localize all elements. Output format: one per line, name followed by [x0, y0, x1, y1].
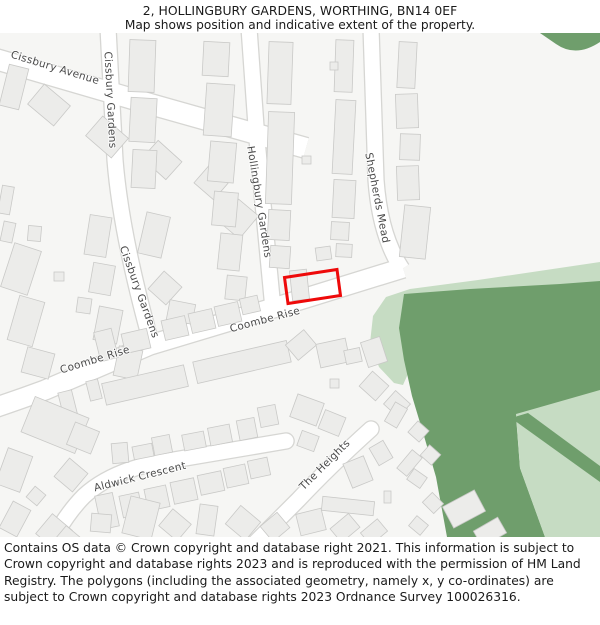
- building-footprint: [384, 491, 391, 503]
- building-footprint: [400, 134, 421, 161]
- building-footprint: [27, 225, 41, 241]
- building-footprint: [257, 404, 278, 427]
- building-footprint: [330, 379, 339, 388]
- building-footprint: [397, 42, 417, 89]
- building-footprint: [247, 457, 270, 479]
- building-footprint: [332, 100, 356, 175]
- building-footprint: [212, 191, 239, 227]
- building-footprint: [170, 478, 198, 505]
- building-footprint: [207, 424, 232, 446]
- building-footprint: [332, 179, 356, 218]
- building-footprint: [129, 97, 157, 142]
- page-subtitle: Map shows position and indicative extent…: [0, 18, 600, 33]
- building-footprint: [265, 112, 294, 205]
- building-footprint: [202, 41, 230, 76]
- map-header: 2, HOLLINGBURY GARDENS, WORTHING, BN14 0…: [0, 0, 600, 33]
- building-footprint: [331, 222, 350, 241]
- building-footprint: [196, 504, 218, 536]
- building-footprint: [151, 434, 172, 455]
- building-footprint: [344, 347, 363, 364]
- building-footprint: [399, 205, 430, 259]
- map-viewport: Cissbury AvenueCissbury GardensCissbury …: [0, 33, 600, 537]
- building-footprint: [89, 262, 116, 295]
- building-footprint: [267, 42, 293, 105]
- building-footprint: [330, 62, 338, 70]
- building-footprint: [225, 275, 247, 301]
- building-footprint: [336, 244, 353, 258]
- building-footprint: [315, 246, 332, 261]
- building-footprint: [131, 149, 157, 188]
- building-footprint: [396, 166, 419, 201]
- building-footprint: [395, 94, 418, 129]
- map-canvas: Cissbury AvenueCissbury GardensCissbury …: [0, 33, 600, 537]
- building-footprint: [76, 297, 92, 314]
- property-map-page: 2, HOLLINGBURY GARDENS, WORTHING, BN14 0…: [0, 0, 600, 625]
- building-footprint: [90, 513, 111, 533]
- building-footprint: [302, 156, 311, 164]
- building-footprint: [236, 417, 257, 440]
- building-footprint: [207, 141, 236, 183]
- building-footprint: [239, 295, 260, 315]
- copyright-attribution: Contains OS data © Crown copyright and d…: [0, 537, 600, 625]
- building-footprint: [111, 442, 129, 463]
- building-footprint: [128, 40, 156, 93]
- building-footprint: [223, 464, 249, 488]
- building-footprint: [203, 83, 235, 137]
- building-footprint: [217, 233, 243, 271]
- building-footprint: [54, 272, 64, 281]
- page-title: 2, HOLLINGBURY GARDENS, WORTHING, BN14 0…: [0, 3, 600, 18]
